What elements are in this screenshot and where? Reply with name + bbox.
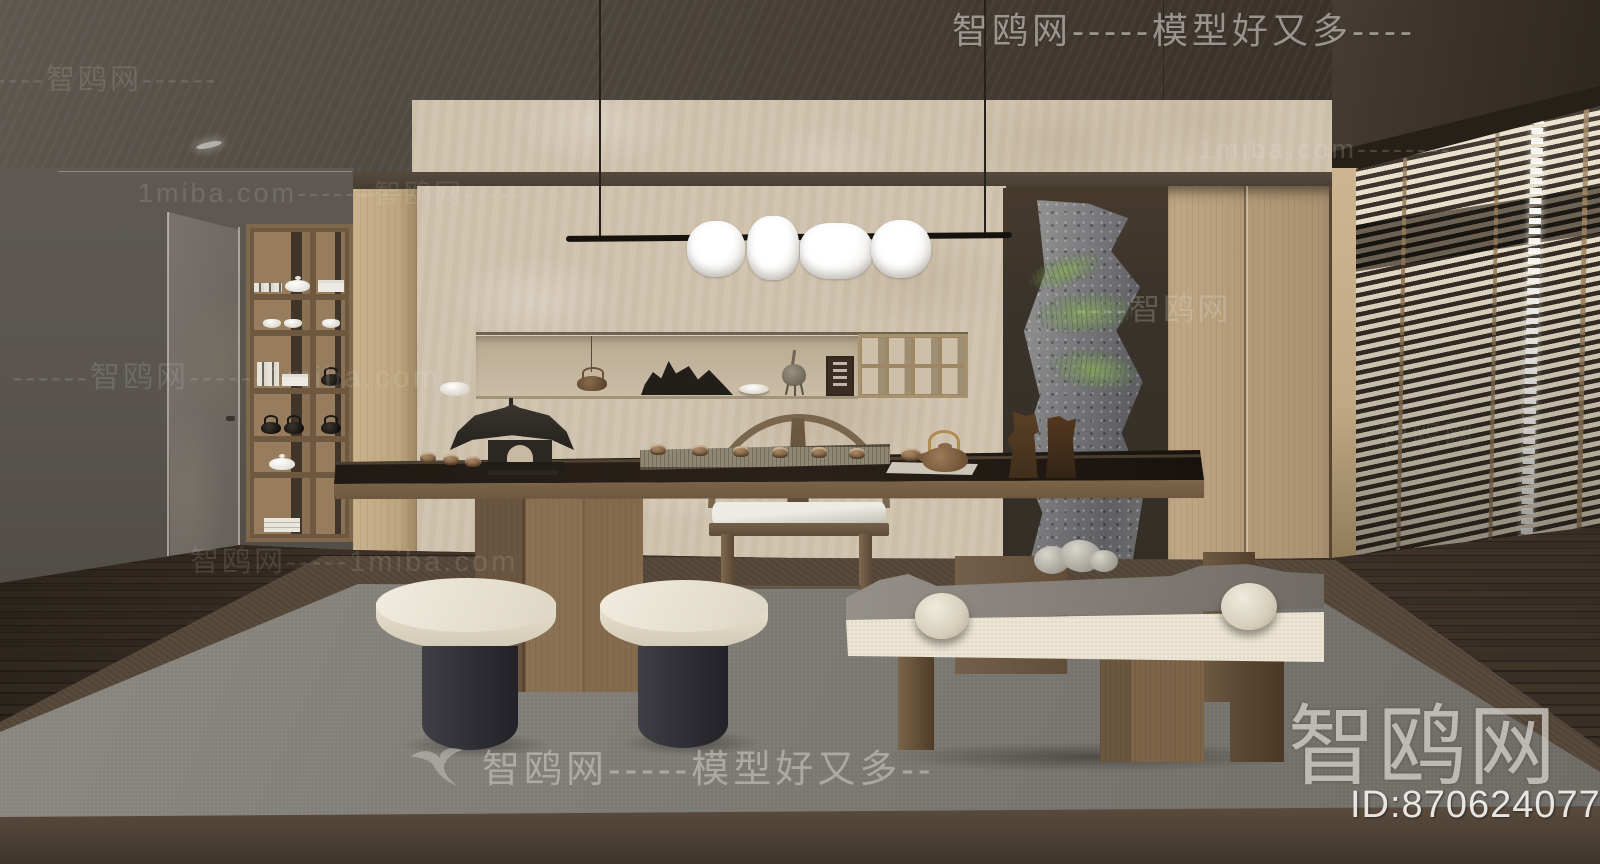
cubby-cell — [942, 338, 965, 364]
shelf-cell — [254, 394, 310, 436]
cubby-cell — [862, 368, 885, 394]
lamp-rod — [984, 0, 986, 236]
venetian-blinds — [1356, 104, 1600, 566]
stacked-books — [264, 518, 300, 532]
tea-cup — [733, 446, 749, 457]
shelf-cell — [254, 336, 310, 388]
white-plate — [739, 384, 769, 394]
white-books — [254, 283, 282, 292]
round-stool-top — [600, 580, 768, 632]
iron-kettle — [321, 422, 341, 434]
blind-shading — [1356, 104, 1600, 566]
pebble-stone — [1090, 550, 1118, 572]
iron-kettle — [261, 422, 281, 434]
bench-leg — [898, 656, 934, 750]
standing-books — [257, 362, 279, 386]
cubby-cell — [889, 338, 912, 364]
tea-cup — [650, 444, 666, 455]
tea-cup — [692, 445, 708, 456]
tea-cup — [443, 454, 459, 465]
bench-leg — [1230, 648, 1284, 762]
wood-carving — [1044, 416, 1078, 478]
tea-cup — [772, 447, 788, 458]
tea-room-render: 智鸥网-----模型好又多---- ------智鸥网------ 1miba.… — [0, 0, 1600, 864]
cubby-cell — [915, 338, 938, 364]
teapot-body — [922, 447, 968, 472]
lamp-shade — [747, 216, 799, 280]
lamp-rod — [599, 0, 601, 238]
shelf-cell — [254, 478, 310, 534]
door-handle — [226, 416, 235, 421]
window-side-panel — [1332, 168, 1358, 564]
cubby-cell — [889, 368, 912, 394]
round-stool-base — [422, 646, 518, 750]
lamp-shade — [800, 223, 872, 279]
shelf-cell — [316, 232, 345, 294]
cubby-shelf-grid — [858, 334, 968, 398]
iron-kettle — [321, 374, 341, 386]
shelf-cell — [316, 300, 345, 330]
bench-leg-panel — [1100, 650, 1204, 762]
upper-wall-band — [412, 100, 1332, 174]
cubby-cell — [942, 368, 965, 394]
tea-cup — [811, 447, 827, 458]
iron-kettle — [284, 422, 304, 434]
round-stool-base — [638, 646, 728, 748]
white-bowl — [322, 319, 340, 328]
shelf-cell — [316, 336, 345, 388]
wardrobe-cabinets — [1168, 186, 1332, 564]
shelf-cell — [316, 394, 345, 436]
pavilion-model — [488, 440, 552, 464]
white-bowl — [263, 319, 281, 328]
white-bowl-on-ledge — [440, 382, 470, 396]
wood-side-panel — [353, 184, 419, 564]
lamp-shade — [871, 220, 931, 278]
white-tureen — [269, 458, 295, 470]
pavilion-step — [488, 470, 558, 475]
cubby-cell — [862, 338, 885, 364]
ceiling-wall-edge — [58, 171, 352, 172]
censer-leg — [794, 385, 796, 396]
white-tureen — [285, 280, 310, 292]
bolster-pillow — [915, 593, 969, 639]
chair-stretcher — [731, 585, 861, 589]
window-bay — [1332, 0, 1600, 566]
white-bowl — [284, 319, 302, 328]
tea-cup — [849, 448, 865, 459]
door-edge-right — [238, 227, 240, 547]
lamp-shade — [687, 221, 745, 277]
bolster-pillow — [1221, 583, 1277, 630]
round-stool-top — [376, 578, 556, 632]
ceiling-seam — [1163, 0, 1164, 100]
framed-art — [826, 356, 854, 396]
door-edge-left — [167, 212, 169, 580]
shelf-cell — [254, 232, 310, 294]
shelf-cell — [254, 442, 310, 472]
white-box — [318, 283, 344, 292]
clay-teapot — [920, 430, 972, 474]
cubby-cell — [915, 368, 938, 394]
white-box — [282, 377, 308, 386]
tea-cup — [420, 452, 436, 463]
hanging-teapot — [577, 376, 607, 391]
tea-cup — [901, 448, 921, 461]
tea-cup — [465, 456, 481, 467]
incense-censer — [782, 364, 806, 386]
shelf-cell — [254, 300, 310, 330]
